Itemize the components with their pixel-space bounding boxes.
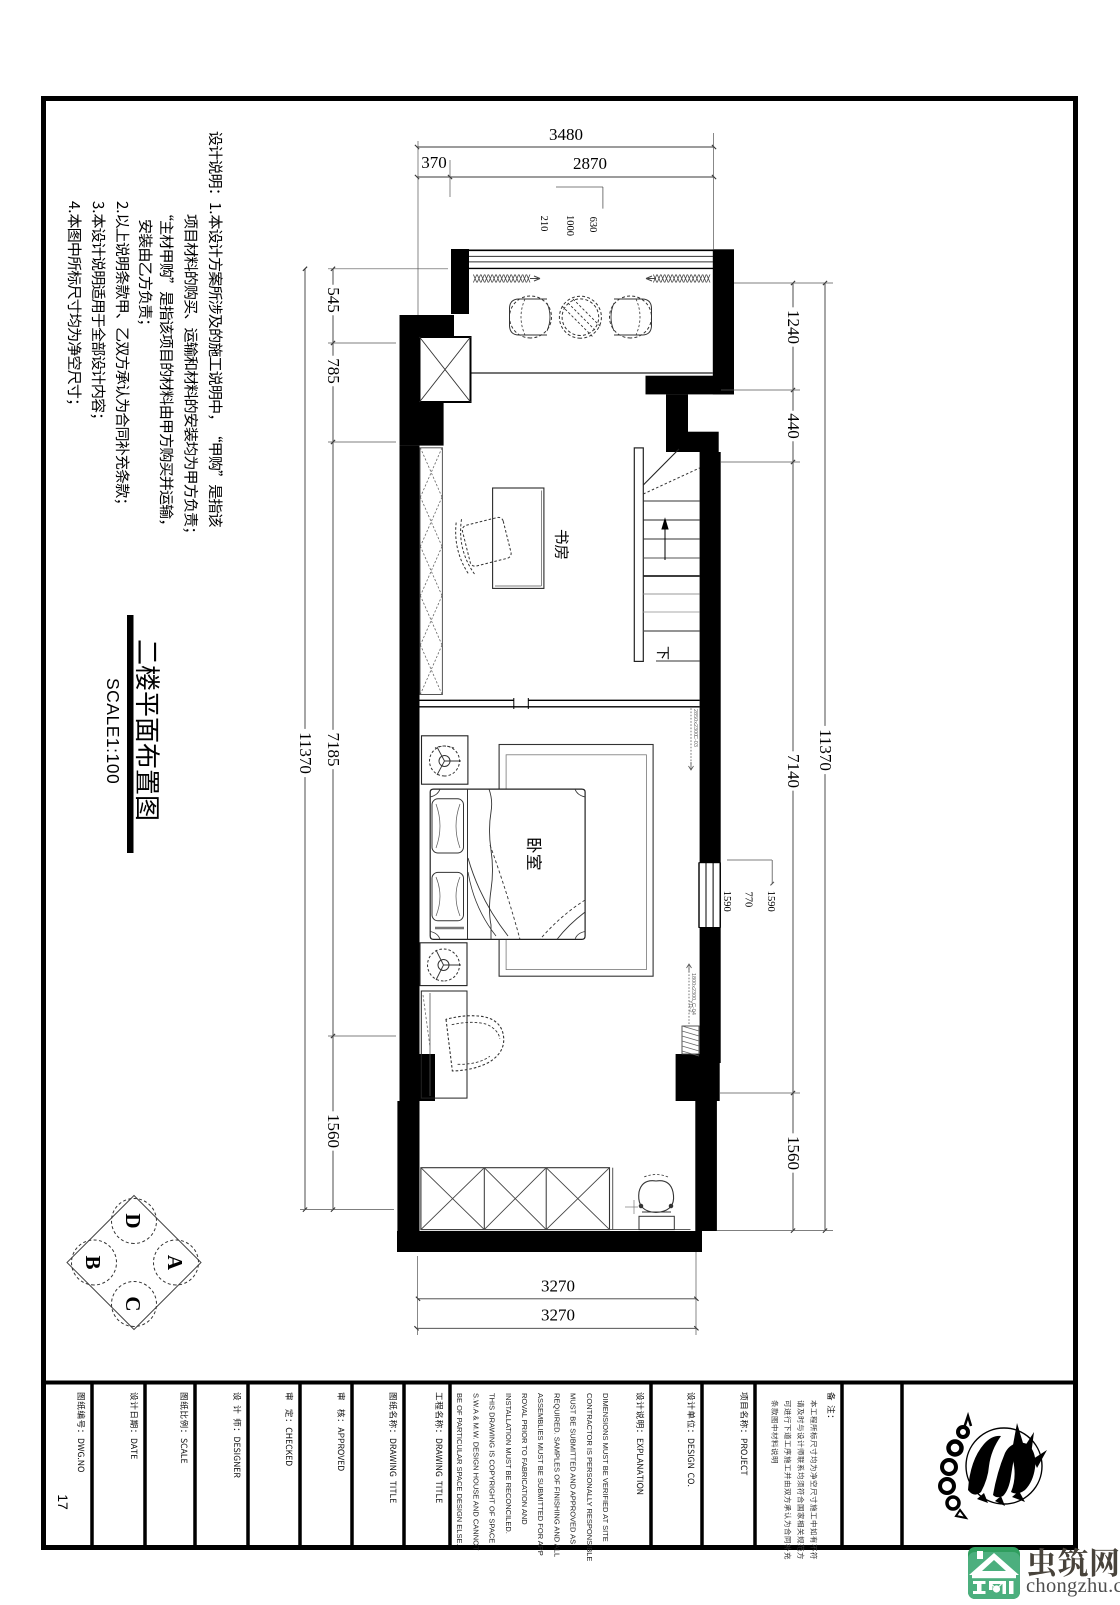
svg-text:chongzhu.cn: chongzhu.cn xyxy=(1026,1575,1120,1597)
